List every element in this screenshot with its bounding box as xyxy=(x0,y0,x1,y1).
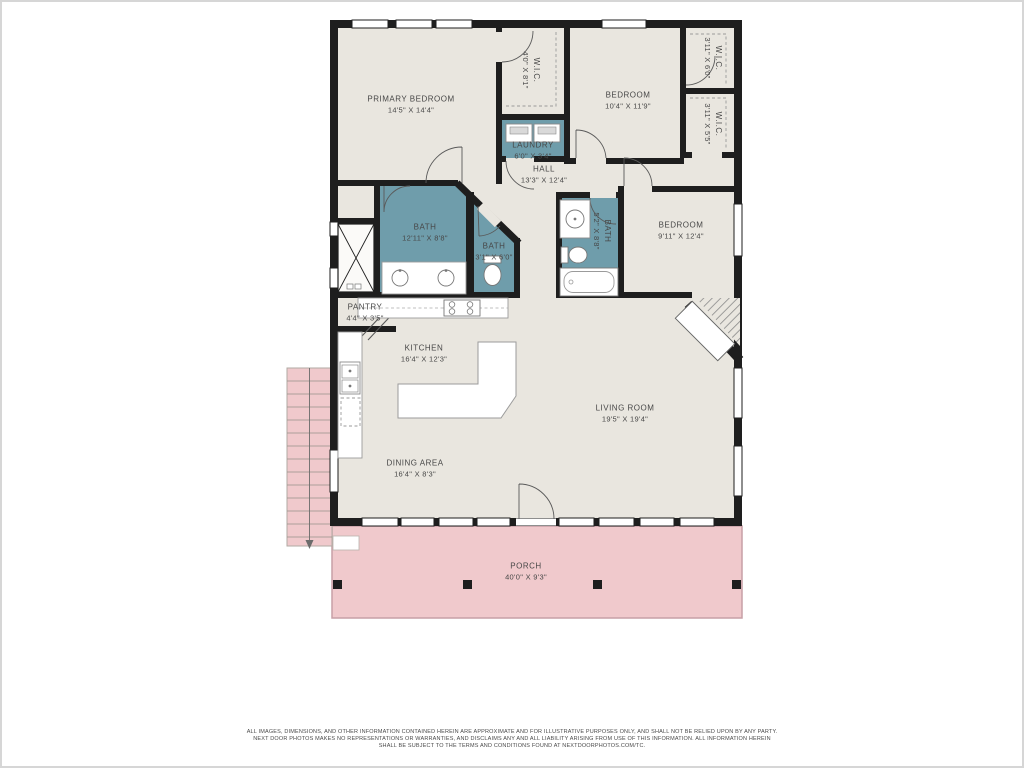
disclaimer-line-2: NEXT DOOR PHOTOS MAKES NO REPRESENTATION… xyxy=(0,736,1024,743)
bath-vanity xyxy=(382,262,466,294)
porch-post xyxy=(593,580,602,589)
disclaimer-line-1: ALL IMAGES, DIMENSIONS, AND OTHER INFORM… xyxy=(0,729,1024,736)
floor-plan-graphic xyxy=(0,0,1024,768)
entry-closet xyxy=(338,224,374,292)
disclaimer-text: ALL IMAGES, DIMENSIONS, AND OTHER INFORM… xyxy=(0,729,1024,750)
front-door-opening xyxy=(516,519,556,526)
sink-icon xyxy=(438,270,454,286)
porch-post xyxy=(333,580,342,589)
toilet-icon xyxy=(561,247,568,263)
floor-plan-page: PRIMARY BEDROOM 14'5" X 14'4" W.I.C. 4'0… xyxy=(0,0,1024,768)
stove-icon xyxy=(444,300,480,316)
disclaimer-line-3: SHALL BE SUBJECT TO THE TERMS AND CONDIT… xyxy=(0,743,1024,750)
porch-area xyxy=(332,526,742,618)
toilet-icon xyxy=(484,256,501,286)
porch-post xyxy=(732,580,741,589)
stair-landing xyxy=(333,536,359,550)
kitchen-counter-left xyxy=(338,332,362,458)
sink-icon xyxy=(392,270,408,286)
porch-post xyxy=(463,580,472,589)
